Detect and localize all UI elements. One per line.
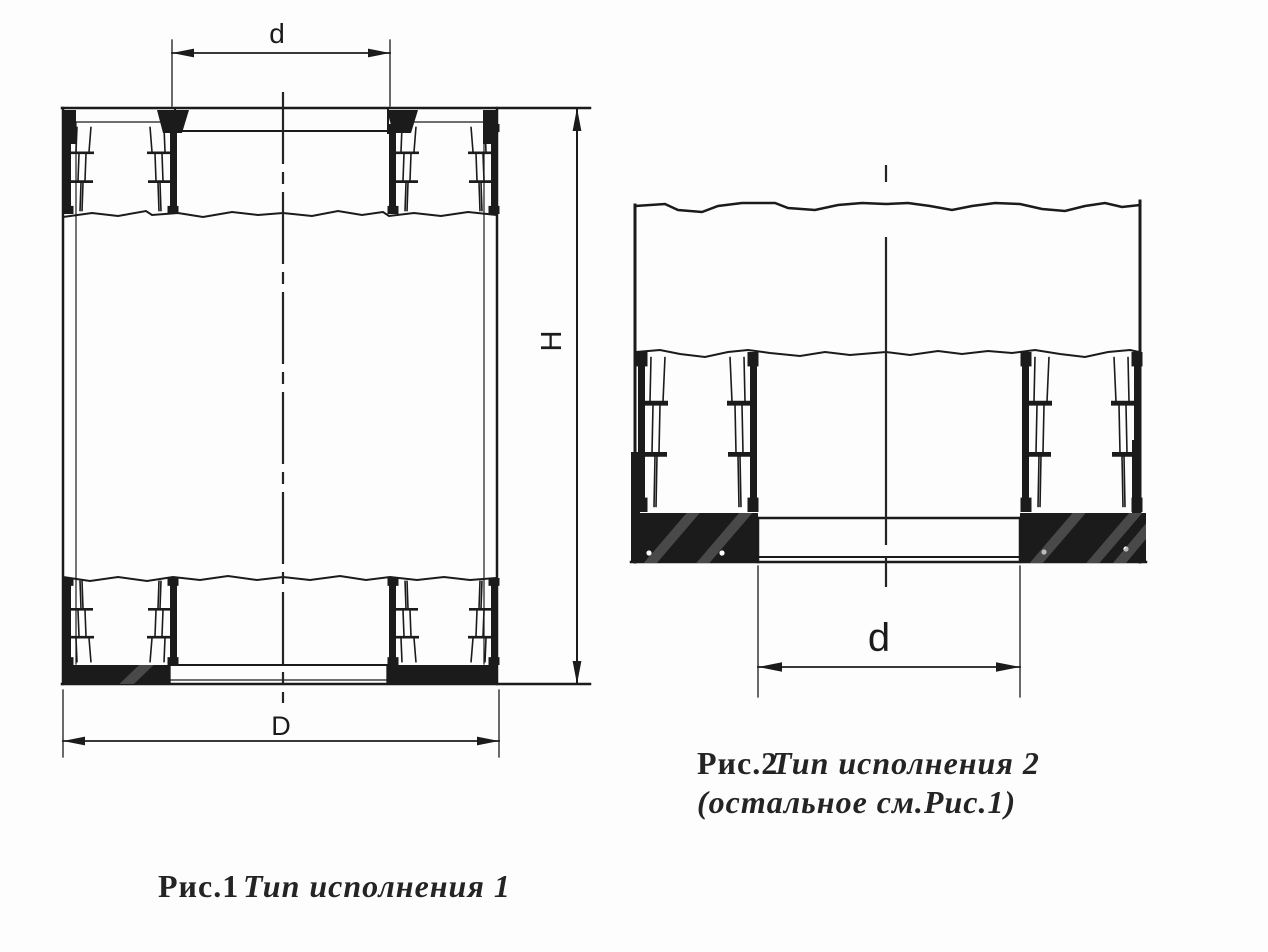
figure1-dim-d-label: d — [269, 18, 285, 49]
figure1-dim-D-label: D — [271, 711, 291, 741]
figure1-caption-title: Тип исполнения 1 — [243, 868, 511, 904]
figure2-caption-title: Тип исполнения 2 — [772, 745, 1040, 781]
figure1-drawing — [62, 92, 590, 703]
figure1-top-end-cap — [62, 110, 498, 144]
figure1-body-outline — [62, 108, 590, 684]
figure1-bottom-break-line — [63, 576, 497, 581]
figure1-caption-prefix: Рис.1 — [158, 868, 239, 904]
figure2-dim-d-label: d — [868, 616, 890, 660]
figure2-inner-break-line — [636, 350, 1139, 357]
figure2-pleats — [637, 352, 1143, 512]
figure2-caption-note: (остальное см.Рис.1) — [697, 784, 1016, 820]
figure1-bottom-pleats — [63, 578, 500, 665]
figure2-top-break-line — [635, 203, 1140, 212]
figure2-drawing — [112, 165, 1162, 698]
figure1-caption: Рис.1 Тип исполнения 1 — [158, 868, 511, 904]
figure2-dimension-d: d — [758, 566, 1020, 697]
figure1-dimension-D: D — [63, 690, 499, 757]
figure1-top-break-line — [63, 211, 497, 217]
figure2-caption: Рис.2 Тип исполнения 2 (остальное см.Рис… — [697, 745, 1040, 820]
drawing-canvas: d D H — [0, 0, 1268, 952]
technical-drawing-page: d D H — [0, 0, 1268, 952]
figure1-dim-H-label: H — [536, 331, 568, 352]
figure1-dimension-d: d — [172, 18, 390, 106]
figure1-top-pleats — [63, 124, 500, 214]
figure2-caption-prefix: Рис.2 — [697, 745, 778, 781]
figure1-dimension-H: H — [536, 108, 581, 684]
